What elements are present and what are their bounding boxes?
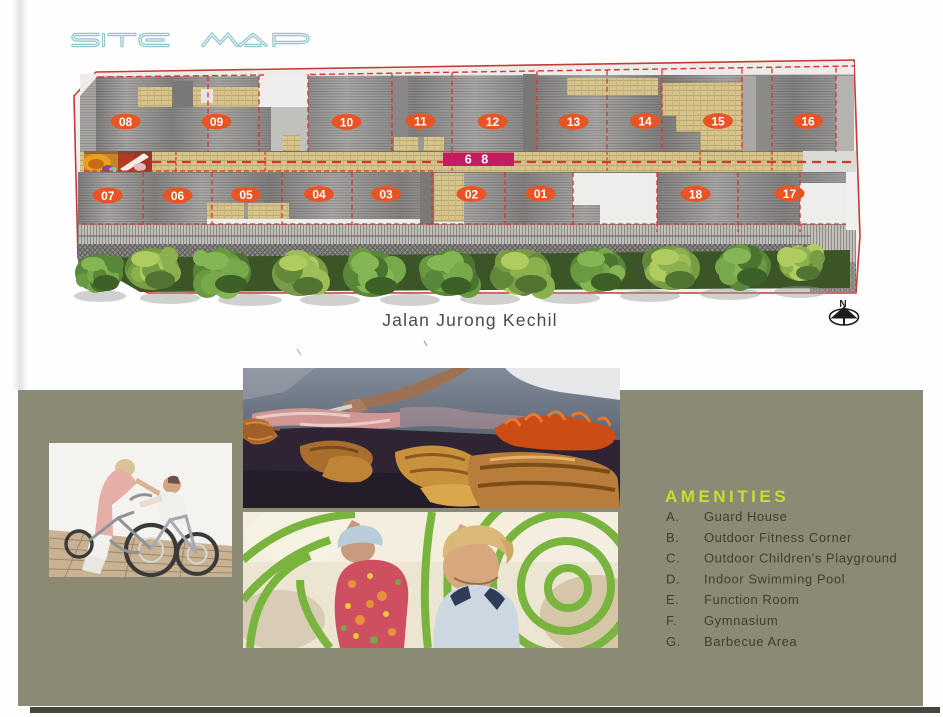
svg-text:Indoor Swimming Pool: Indoor Swimming Pool [704, 571, 845, 586]
svg-text:A.: A. [666, 509, 679, 524]
svg-text:13: 13 [567, 115, 581, 129]
svg-text:Gymnasium: Gymnasium [704, 613, 778, 628]
svg-text:10: 10 [340, 115, 354, 129]
svg-text:16: 16 [801, 115, 815, 129]
svg-text:02: 02 [465, 188, 479, 202]
svg-text:01: 01 [534, 187, 548, 201]
svg-text:Outdoor Fitness Corner: Outdoor Fitness Corner [704, 530, 852, 545]
svg-text:12: 12 [486, 115, 500, 129]
svg-text:17: 17 [783, 187, 797, 201]
svg-text:07: 07 [101, 189, 115, 203]
svg-text:E.: E. [666, 592, 679, 607]
svg-text:Outdoor Children's Playground: Outdoor Children's Playground [704, 551, 897, 566]
svg-text:06: 06 [171, 189, 185, 203]
svg-text:C.: C. [666, 551, 680, 566]
svg-text:03: 03 [379, 188, 393, 202]
svg-text:18: 18 [689, 187, 703, 201]
svg-text:F.: F. [666, 613, 677, 628]
svg-text:Guard House: Guard House [704, 509, 787, 524]
svg-text:G.: G. [666, 634, 681, 649]
svg-text:05: 05 [239, 188, 253, 202]
svg-text:Jalan Jurong Kechil: Jalan Jurong Kechil [382, 310, 558, 330]
svg-text:AMENITIES: AMENITIES [665, 487, 789, 506]
svg-text:11: 11 [414, 115, 427, 129]
svg-text:Function Room: Function Room [704, 592, 799, 607]
svg-text:04: 04 [312, 188, 326, 202]
svg-text:B.: B. [666, 530, 679, 545]
svg-text:6 8: 6 8 [465, 153, 491, 167]
svg-text:Barbecue Area: Barbecue Area [704, 634, 797, 649]
svg-text:15: 15 [711, 115, 725, 129]
svg-text:09: 09 [210, 115, 224, 129]
svg-text:D.: D. [666, 571, 680, 586]
svg-text:08: 08 [119, 115, 133, 129]
svg-text:14: 14 [638, 115, 652, 129]
